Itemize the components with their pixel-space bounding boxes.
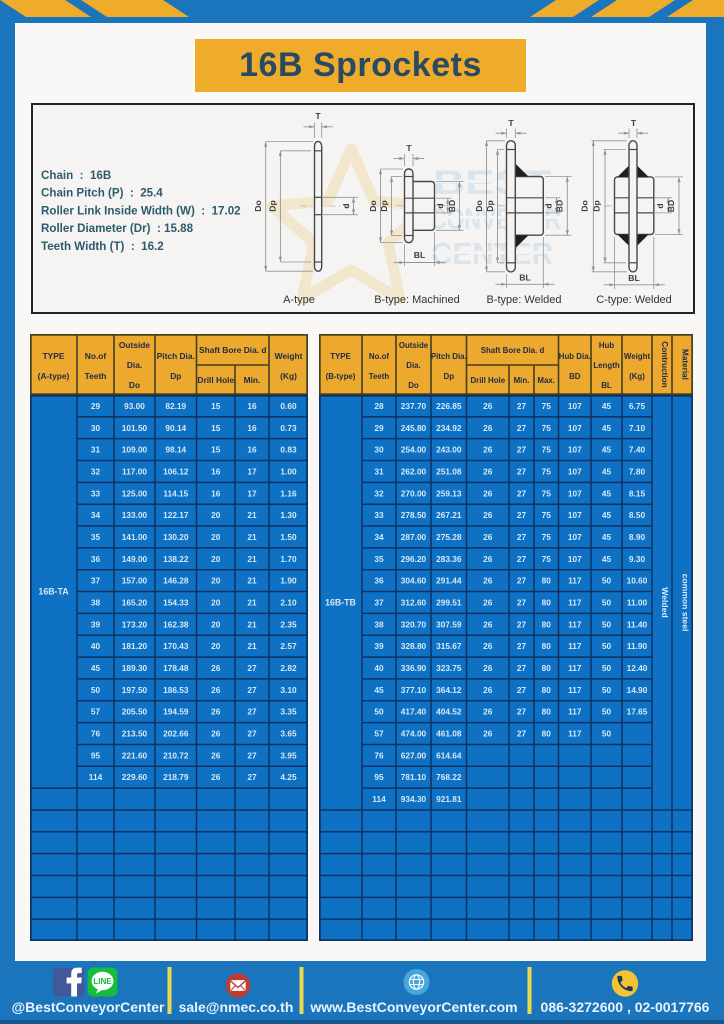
svg-text:27: 27: [247, 729, 257, 739]
svg-text:Do: Do: [368, 200, 378, 211]
svg-text:80: 80: [542, 685, 552, 695]
svg-text:Material: Material: [681, 349, 690, 380]
svg-text:186.53: 186.53: [163, 685, 189, 695]
svg-text:296.20: 296.20: [401, 554, 427, 564]
svg-text:BL: BL: [601, 381, 612, 390]
svg-text:20: 20: [211, 554, 221, 564]
svg-text:614.64: 614.64: [436, 750, 462, 760]
svg-text:11.00: 11.00: [627, 598, 648, 608]
svg-text:45: 45: [602, 488, 612, 498]
svg-text:26: 26: [483, 445, 493, 455]
svg-text:BL: BL: [414, 250, 425, 260]
svg-text:106.12: 106.12: [163, 466, 189, 476]
svg-text:194.59: 194.59: [163, 707, 189, 717]
svg-text:50: 50: [602, 576, 612, 586]
svg-text:80: 80: [542, 729, 552, 739]
svg-text:Roller Link Inside Width (W): Roller Link Inside Width (W) : 17.02: [41, 204, 241, 217]
svg-text:BD: BD: [666, 200, 676, 212]
svg-text:Contruction: Contruction: [660, 341, 669, 387]
svg-text:26: 26: [483, 423, 493, 433]
svg-text:259.13: 259.13: [436, 488, 462, 498]
svg-text:117.00: 117.00: [122, 466, 147, 476]
svg-text:20: 20: [211, 576, 221, 586]
svg-text:109.00: 109.00: [122, 445, 148, 455]
svg-text:50: 50: [602, 729, 612, 739]
svg-text:(Kg): (Kg): [629, 372, 645, 381]
svg-text:45: 45: [602, 554, 612, 564]
svg-text:125.00: 125.00: [122, 488, 148, 498]
svg-text:50: 50: [374, 707, 384, 717]
svg-text:404.52: 404.52: [436, 707, 462, 717]
svg-text:4.25: 4.25: [280, 772, 297, 782]
svg-text:16: 16: [211, 488, 221, 498]
svg-text:312.60: 312.60: [401, 598, 427, 608]
svg-text:d: d: [341, 203, 351, 208]
svg-text:275.28: 275.28: [436, 532, 462, 542]
svg-text:38: 38: [374, 619, 384, 629]
svg-text:27: 27: [517, 641, 527, 651]
svg-text:80: 80: [542, 576, 552, 586]
svg-text:50: 50: [602, 685, 612, 695]
svg-text:90.14: 90.14: [165, 423, 186, 433]
svg-text:45: 45: [602, 445, 612, 455]
svg-text:3.10: 3.10: [280, 685, 297, 695]
svg-text:3.65: 3.65: [280, 729, 297, 739]
svg-text:75: 75: [542, 554, 552, 564]
svg-text:75: 75: [542, 466, 552, 476]
svg-text:45: 45: [602, 510, 612, 520]
svg-text:213.50: 213.50: [122, 729, 148, 739]
svg-text:117: 117: [568, 619, 582, 629]
svg-text:21: 21: [247, 598, 257, 608]
svg-text:114: 114: [89, 772, 103, 782]
svg-text:26: 26: [211, 663, 221, 673]
svg-text:267.21: 267.21: [436, 510, 462, 520]
svg-text:50: 50: [602, 598, 612, 608]
svg-text:210.72: 210.72: [163, 750, 189, 760]
svg-text:36: 36: [374, 576, 384, 586]
svg-text:26: 26: [211, 685, 221, 695]
svg-text:35: 35: [91, 532, 101, 542]
svg-text:50: 50: [602, 707, 612, 717]
svg-text:7.10: 7.10: [629, 423, 646, 433]
svg-text:133.00: 133.00: [122, 510, 148, 520]
svg-text:75: 75: [542, 488, 552, 498]
svg-text:0.83: 0.83: [280, 445, 297, 455]
svg-text:26: 26: [483, 729, 493, 739]
svg-text:107: 107: [568, 445, 582, 455]
svg-text:TYPE: TYPE: [43, 351, 65, 361]
svg-text:16B-TB: 16B-TB: [325, 598, 356, 608]
svg-text:8.50: 8.50: [629, 510, 646, 520]
svg-text:27: 27: [517, 576, 527, 586]
svg-text:TYPE: TYPE: [330, 352, 351, 361]
svg-text:27: 27: [247, 685, 257, 695]
svg-text:Do: Do: [474, 200, 484, 211]
svg-text:27: 27: [517, 707, 527, 717]
svg-text:0.60: 0.60: [280, 401, 297, 411]
svg-text:234.92: 234.92: [436, 423, 462, 433]
svg-text:27: 27: [517, 401, 527, 411]
svg-text:21: 21: [247, 619, 257, 629]
svg-text:26: 26: [483, 707, 493, 717]
svg-text:16B-TA: 16B-TA: [38, 587, 69, 597]
svg-text:26: 26: [211, 750, 221, 760]
svg-text:26: 26: [483, 576, 493, 586]
svg-text:34: 34: [91, 510, 101, 520]
svg-text:Outside: Outside: [399, 341, 429, 350]
svg-text:No.of: No.of: [85, 351, 107, 361]
svg-text:17: 17: [247, 488, 257, 498]
svg-text:26: 26: [483, 510, 493, 520]
svg-text:Do: Do: [129, 380, 140, 390]
svg-text:(A-type): (A-type): [38, 371, 70, 381]
svg-text:d: d: [655, 203, 665, 208]
svg-text:75: 75: [542, 445, 552, 455]
svg-text:3.35: 3.35: [280, 707, 297, 717]
svg-text:270.00: 270.00: [401, 488, 427, 498]
svg-text:A-type: A-type: [283, 294, 315, 306]
svg-text:75: 75: [542, 532, 552, 542]
svg-text:189.30: 189.30: [122, 663, 148, 673]
svg-text:086-3272600 , 02-0017766: 086-3272600 , 02-0017766: [541, 999, 710, 1015]
svg-text:291.44: 291.44: [436, 576, 462, 586]
svg-text:28: 28: [374, 401, 384, 411]
svg-text:474.00: 474.00: [401, 729, 427, 739]
svg-text:307.59: 307.59: [436, 619, 462, 629]
svg-text:35: 35: [374, 554, 384, 564]
svg-text:75: 75: [542, 510, 552, 520]
svg-text:27: 27: [517, 663, 527, 673]
svg-text:251.08: 251.08: [436, 466, 462, 476]
svg-text:461.08: 461.08: [436, 729, 462, 739]
svg-text:50: 50: [602, 641, 612, 651]
svg-text:107: 107: [568, 401, 582, 411]
svg-text:10.60: 10.60: [627, 576, 648, 586]
svg-text:26: 26: [483, 532, 493, 542]
svg-text:Dp: Dp: [444, 372, 455, 381]
svg-text:45: 45: [374, 685, 384, 695]
svg-text:27: 27: [247, 750, 257, 760]
svg-text:21: 21: [247, 641, 257, 651]
svg-text:d: d: [543, 203, 553, 208]
svg-text:7.80: 7.80: [629, 466, 646, 476]
svg-text:30: 30: [91, 423, 101, 433]
svg-text:Shaft Bore Dia. d: Shaft Bore Dia. d: [199, 345, 266, 355]
svg-text:336.90: 336.90: [401, 663, 427, 673]
svg-text:1.90: 1.90: [280, 576, 297, 586]
svg-text:Shaft Bore Dia. d: Shaft Bore Dia. d: [481, 346, 545, 355]
svg-text:Dp: Dp: [170, 371, 181, 381]
svg-text:107: 107: [568, 532, 582, 542]
svg-text:d: d: [435, 203, 445, 208]
svg-text:323.75: 323.75: [436, 663, 462, 673]
svg-text:8.15: 8.15: [629, 488, 646, 498]
svg-text:(Kg): (Kg): [280, 371, 297, 381]
svg-text:Chain : 16B: Chain : 16B: [41, 169, 111, 182]
svg-text:20: 20: [211, 532, 221, 542]
svg-text:364.12: 364.12: [436, 685, 462, 695]
svg-text:27: 27: [517, 445, 527, 455]
svg-text:377.10: 377.10: [401, 685, 427, 695]
svg-text:229.60: 229.60: [122, 772, 148, 782]
svg-text:common steel: common steel: [681, 574, 691, 632]
svg-text:BD: BD: [554, 200, 564, 212]
svg-text:315.67: 315.67: [436, 641, 462, 651]
svg-text:Length: Length: [593, 361, 619, 370]
svg-text:Hub Dia.: Hub Dia.: [559, 352, 591, 361]
svg-text:No.of: No.of: [369, 352, 390, 361]
svg-text:7.40: 7.40: [629, 445, 646, 455]
svg-text:245.80: 245.80: [401, 423, 427, 433]
svg-text:21: 21: [247, 554, 257, 564]
svg-text:117: 117: [568, 598, 582, 608]
svg-text:117: 117: [568, 576, 582, 586]
svg-text:32: 32: [91, 466, 101, 476]
svg-text:80: 80: [542, 619, 552, 629]
svg-text:Weight: Weight: [275, 351, 303, 361]
svg-text:76: 76: [91, 729, 101, 739]
svg-text:299.51: 299.51: [436, 598, 462, 608]
svg-text:15: 15: [211, 445, 221, 455]
svg-text:45: 45: [602, 401, 612, 411]
svg-text:30: 30: [374, 445, 384, 455]
svg-text:57: 57: [91, 707, 101, 717]
svg-text:Pitch Dia.: Pitch Dia.: [157, 351, 195, 361]
svg-text:37: 37: [374, 598, 384, 608]
svg-text:Teeth: Teeth: [369, 372, 390, 381]
svg-text:45: 45: [602, 423, 612, 433]
svg-text:Teeth Width (T) : 16.2: Teeth Width (T) : 16.2: [41, 240, 164, 253]
svg-text:26: 26: [211, 707, 221, 717]
svg-text:221.60: 221.60: [122, 750, 148, 760]
svg-text:2.35: 2.35: [280, 619, 297, 629]
svg-text:40: 40: [91, 641, 101, 651]
svg-text:Dia.: Dia.: [127, 360, 142, 370]
svg-text:15: 15: [211, 423, 221, 433]
svg-text:26: 26: [211, 772, 221, 782]
svg-text:Do: Do: [253, 200, 263, 211]
svg-text:6.75: 6.75: [629, 401, 646, 411]
svg-text:27: 27: [517, 466, 527, 476]
svg-text:1.70: 1.70: [280, 554, 297, 564]
svg-text:45: 45: [602, 532, 612, 542]
svg-text:57: 57: [374, 729, 384, 739]
svg-text:27: 27: [517, 532, 527, 542]
svg-text:11.90: 11.90: [627, 641, 648, 651]
svg-text:Roller Diameter (Dr) : 15.88: Roller Diameter (Dr) : 15.88: [41, 222, 194, 235]
svg-text:9.30: 9.30: [629, 554, 646, 564]
svg-text:287.00: 287.00: [401, 532, 427, 542]
svg-text:170.43: 170.43: [163, 641, 189, 651]
svg-text:20: 20: [211, 641, 221, 651]
svg-text:26: 26: [483, 598, 493, 608]
svg-text:T: T: [406, 143, 412, 153]
svg-text:95: 95: [374, 772, 384, 782]
svg-text:17: 17: [247, 466, 257, 476]
svg-text:12.40: 12.40: [627, 663, 648, 673]
svg-text:178.48: 178.48: [163, 663, 189, 673]
svg-text:26: 26: [483, 554, 493, 564]
svg-text:36: 36: [91, 554, 101, 564]
svg-text:11.40: 11.40: [627, 619, 648, 629]
svg-text:117: 117: [568, 641, 582, 651]
svg-text:T: T: [631, 118, 637, 128]
svg-text:2.82: 2.82: [280, 663, 297, 673]
svg-text:27: 27: [247, 707, 257, 717]
svg-text:40: 40: [374, 663, 384, 673]
svg-text:921.81: 921.81: [436, 794, 462, 804]
svg-text:27: 27: [517, 685, 527, 695]
svg-text:32: 32: [374, 488, 384, 498]
svg-text:16: 16: [211, 466, 221, 476]
svg-text:www.BestConveyorCenter.com: www.BestConveyorCenter.com: [309, 999, 517, 1015]
svg-text:20: 20: [211, 510, 221, 520]
svg-text:Outside: Outside: [119, 340, 151, 350]
svg-text:107: 107: [568, 488, 582, 498]
svg-text:15: 15: [211, 401, 221, 411]
svg-text:76: 76: [374, 750, 384, 760]
svg-text:165.20: 165.20: [122, 598, 148, 608]
svg-text:781.10: 781.10: [401, 772, 427, 782]
svg-text:Do: Do: [580, 200, 590, 211]
svg-text:26: 26: [211, 729, 221, 739]
svg-text:80: 80: [542, 707, 552, 717]
svg-text:LINE: LINE: [93, 977, 112, 986]
svg-text:26: 26: [483, 619, 493, 629]
svg-text:262.00: 262.00: [401, 466, 427, 476]
svg-text:278.50: 278.50: [401, 510, 427, 520]
svg-text:93.00: 93.00: [124, 401, 145, 411]
svg-text:627.00: 627.00: [401, 750, 427, 760]
svg-text:197.50: 197.50: [122, 685, 148, 695]
svg-text:27: 27: [517, 619, 527, 629]
svg-text:304.60: 304.60: [401, 576, 427, 586]
svg-text:202.66: 202.66: [163, 729, 189, 739]
svg-text:75: 75: [542, 401, 552, 411]
svg-text:130.20: 130.20: [163, 532, 189, 542]
svg-text:Drill Hole: Drill Hole: [470, 376, 505, 385]
svg-text:117: 117: [568, 729, 582, 739]
svg-text:154.33: 154.33: [163, 598, 189, 608]
svg-text:254.00: 254.00: [401, 445, 427, 455]
svg-text:107: 107: [568, 554, 582, 564]
svg-text:80: 80: [542, 641, 552, 651]
svg-text:31: 31: [91, 445, 101, 455]
svg-text:107: 107: [568, 466, 582, 476]
svg-text:Dia.: Dia.: [406, 361, 420, 370]
svg-text:146.28: 146.28: [163, 576, 189, 586]
svg-text:26: 26: [483, 466, 493, 476]
svg-text:Drill Hole: Drill Hole: [197, 375, 234, 385]
svg-text:138.22: 138.22: [163, 554, 189, 564]
svg-text:768.22: 768.22: [436, 772, 462, 782]
svg-text:T: T: [315, 111, 321, 121]
svg-text:162.38: 162.38: [163, 619, 189, 629]
svg-text:114.15: 114.15: [163, 488, 188, 498]
svg-text:226.85: 226.85: [436, 401, 462, 411]
svg-text:50: 50: [602, 663, 612, 673]
svg-text:37: 37: [91, 576, 101, 586]
svg-text:33: 33: [374, 510, 384, 520]
svg-text:157.00: 157.00: [122, 576, 148, 586]
svg-text:205.50: 205.50: [122, 707, 148, 717]
svg-text:320.70: 320.70: [401, 619, 427, 629]
svg-text:BD: BD: [569, 372, 581, 381]
svg-text:1.16: 1.16: [280, 488, 297, 498]
svg-text:21: 21: [247, 576, 257, 586]
svg-text:Chain Pitch (P) : 25.4: Chain Pitch (P) : 25.4: [41, 187, 163, 200]
svg-text:27: 27: [517, 598, 527, 608]
svg-text:38: 38: [91, 598, 101, 608]
svg-text:21: 21: [247, 532, 257, 542]
svg-text:Pitch Dia.: Pitch Dia.: [431, 352, 467, 361]
svg-text:1.00: 1.00: [280, 466, 297, 476]
svg-text:BL: BL: [519, 273, 530, 283]
svg-text:107: 107: [568, 510, 582, 520]
svg-text:114: 114: [372, 794, 386, 804]
svg-text:80: 80: [542, 598, 552, 608]
svg-text:Welded: Welded: [660, 587, 670, 617]
svg-text:sale@nmec.co.th: sale@nmec.co.th: [179, 999, 294, 1015]
svg-text:26: 26: [483, 401, 493, 411]
svg-text:31: 31: [374, 466, 384, 476]
svg-text:21: 21: [247, 510, 257, 520]
svg-text:Dp: Dp: [268, 200, 278, 211]
svg-text:1.50: 1.50: [280, 532, 297, 542]
svg-text:29: 29: [374, 423, 384, 433]
svg-text:16: 16: [247, 423, 257, 433]
svg-text:27: 27: [517, 423, 527, 433]
svg-text:B-type: Machined: B-type: Machined: [374, 294, 460, 306]
svg-text:20: 20: [211, 619, 221, 629]
svg-text:29: 29: [91, 401, 101, 411]
svg-text:20: 20: [211, 598, 221, 608]
svg-text:BD: BD: [447, 200, 457, 212]
svg-text:934.30: 934.30: [401, 794, 427, 804]
svg-text:Do: Do: [408, 381, 419, 390]
svg-text:BL: BL: [628, 273, 639, 283]
svg-text:328.80: 328.80: [401, 641, 427, 651]
svg-text:Min.: Min.: [244, 375, 261, 385]
svg-text:2.10: 2.10: [280, 598, 297, 608]
svg-text:1.30: 1.30: [280, 510, 297, 520]
svg-text:27: 27: [247, 663, 257, 673]
svg-text:27: 27: [517, 488, 527, 498]
svg-text:50: 50: [91, 685, 101, 695]
svg-text:Min.: Min.: [514, 376, 530, 385]
svg-text:50: 50: [602, 619, 612, 629]
svg-text:C-type: Welded: C-type: Welded: [596, 294, 672, 306]
svg-text:17.65: 17.65: [627, 707, 648, 717]
svg-text:39: 39: [374, 641, 384, 651]
svg-text:95: 95: [91, 750, 101, 760]
svg-text:26: 26: [483, 663, 493, 673]
svg-text:39: 39: [91, 619, 101, 629]
svg-text:26: 26: [483, 488, 493, 498]
svg-text:82.19: 82.19: [165, 401, 186, 411]
svg-text:Max.: Max.: [537, 376, 555, 385]
svg-text:45: 45: [602, 466, 612, 476]
svg-text:98.14: 98.14: [165, 445, 186, 455]
svg-text:80: 80: [542, 663, 552, 673]
svg-text:33: 33: [91, 488, 101, 498]
svg-text:141.00: 141.00: [122, 532, 148, 542]
svg-text:45: 45: [91, 663, 101, 673]
svg-text:243.00: 243.00: [436, 445, 462, 455]
svg-text:26: 26: [483, 685, 493, 695]
svg-text:34: 34: [374, 532, 384, 542]
